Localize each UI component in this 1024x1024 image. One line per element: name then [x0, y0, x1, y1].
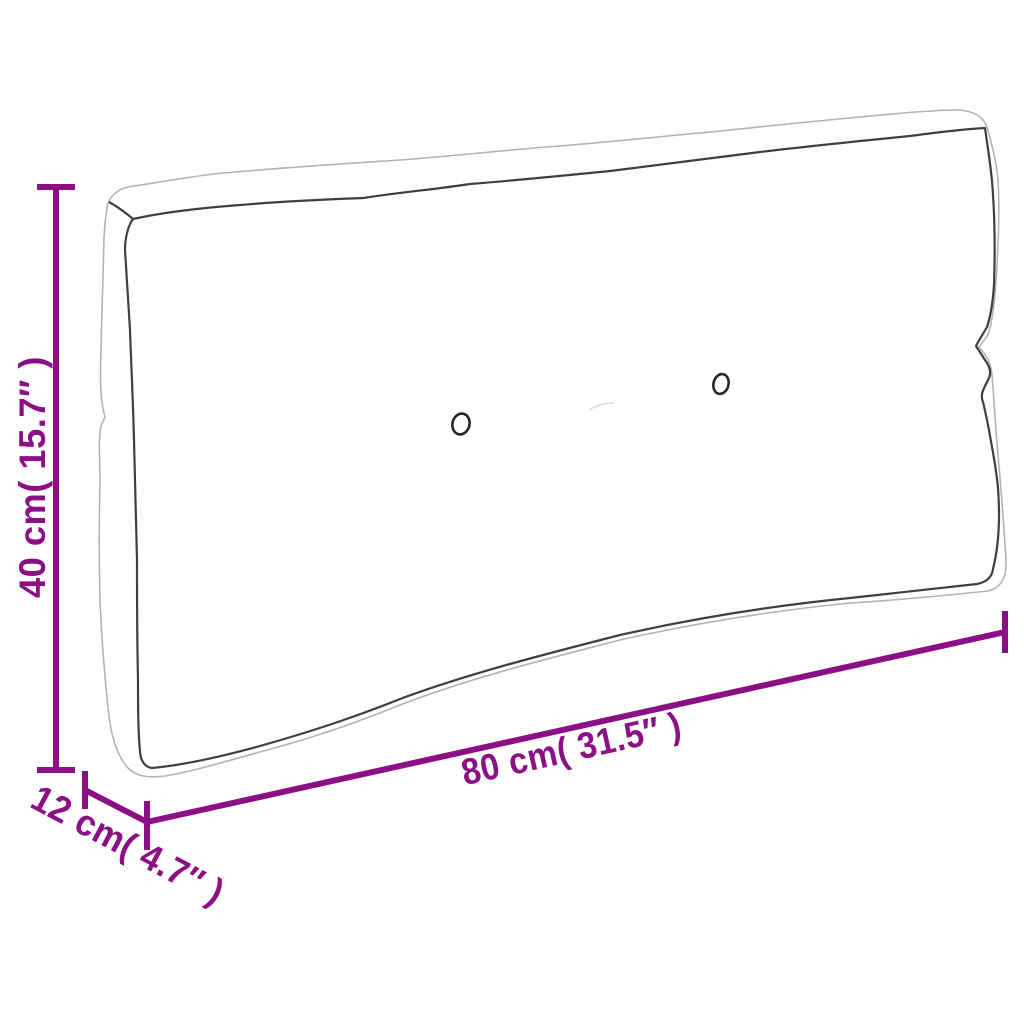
depth-dimension-label: 12 cm( 4.7″ ): [25, 777, 231, 913]
product-dimension-diagram: 40 cm( 15.7″ ) 80 cm( 31.5″ ) 12 cm( 4.7…: [0, 0, 1024, 1024]
diagram-canvas: 40 cm( 15.7″ ) 80 cm( 31.5″ ) 12 cm( 4.7…: [0, 0, 1024, 1024]
height-dimension-label: 40 cm( 15.7″ ): [12, 356, 53, 598]
cushion-corner-crease: [109, 202, 133, 219]
cushion-seam: [125, 128, 999, 768]
cushion-center-crease: [589, 403, 614, 410]
cushion-button-right: [711, 372, 730, 395]
cushion-outer-silhouette: [99, 110, 1006, 777]
cushion: [99, 110, 1006, 777]
depth-dimension: 12 cm( 4.7″ ): [25, 771, 231, 913]
height-dimension: 40 cm( 15.7″ ): [12, 187, 75, 770]
length-dimension-label: 80 cm( 31.5″ ): [457, 704, 685, 793]
cushion-button-left: [450, 412, 472, 436]
